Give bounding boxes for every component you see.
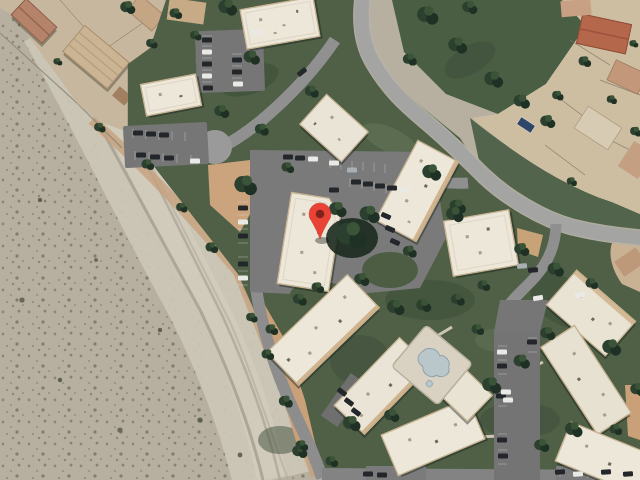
parking-lot — [494, 300, 548, 332]
satellite-imagery — [0, 0, 640, 480]
marker-dot — [316, 210, 325, 219]
marker-shadow — [315, 237, 329, 244]
house-roof — [560, 0, 591, 17]
satellite-map-canvas[interactable] — [0, 0, 640, 480]
